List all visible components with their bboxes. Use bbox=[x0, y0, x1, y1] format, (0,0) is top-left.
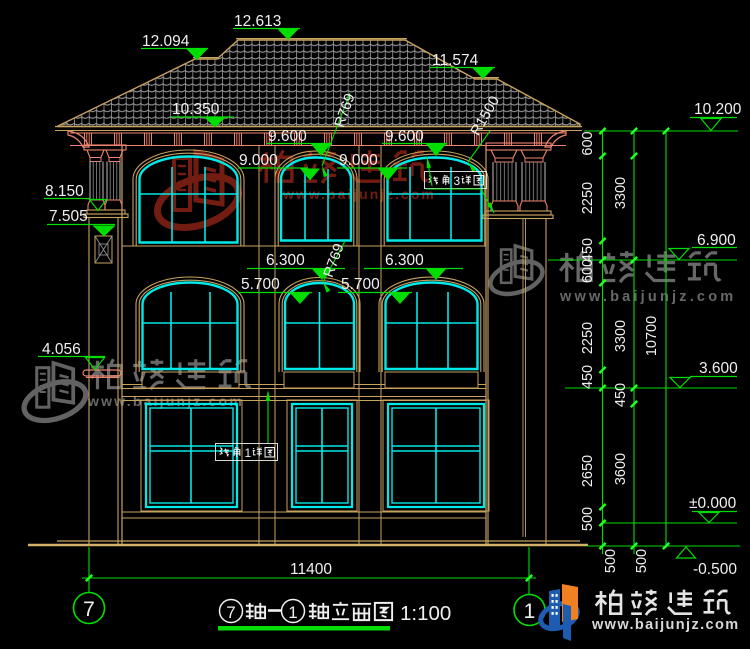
svg-text:3300: 3300 bbox=[613, 177, 629, 209]
svg-text:www.baijunjz.com: www.baijunjz.com bbox=[591, 617, 740, 633]
svg-text:12.613: 12.613 bbox=[234, 13, 281, 30]
svg-text:3.600: 3.600 bbox=[699, 360, 738, 377]
svg-text:6.900: 6.900 bbox=[697, 232, 736, 249]
svg-text:10.200: 10.200 bbox=[694, 101, 742, 118]
svg-text:450: 450 bbox=[580, 238, 596, 262]
svg-text:9.000: 9.000 bbox=[239, 152, 278, 169]
svg-text:-0.500: -0.500 bbox=[693, 561, 737, 578]
svg-text:12.094: 12.094 bbox=[142, 33, 190, 50]
svg-text:9.600: 9.600 bbox=[385, 128, 424, 145]
svg-text:9.600: 9.600 bbox=[268, 128, 307, 145]
svg-text:7: 7 bbox=[83, 598, 95, 621]
svg-text:11400: 11400 bbox=[290, 561, 332, 578]
svg-text:6.300: 6.300 bbox=[385, 252, 424, 269]
svg-text:600: 600 bbox=[580, 131, 596, 155]
svg-text:450: 450 bbox=[580, 365, 596, 389]
svg-text:2250: 2250 bbox=[580, 182, 596, 214]
svg-text:5.700: 5.700 bbox=[241, 276, 280, 293]
svg-text:500: 500 bbox=[580, 507, 596, 531]
svg-text:5.700: 5.700 bbox=[341, 276, 380, 293]
svg-text:500: 500 bbox=[603, 549, 619, 573]
svg-text:4.056: 4.056 bbox=[42, 341, 81, 358]
svg-text:9.000: 9.000 bbox=[339, 152, 378, 169]
svg-text:3: 3 bbox=[454, 174, 461, 188]
svg-text:1: 1 bbox=[524, 600, 536, 623]
svg-text:3600: 3600 bbox=[613, 453, 629, 485]
svg-text:1: 1 bbox=[245, 446, 252, 460]
svg-text:2250: 2250 bbox=[580, 322, 596, 354]
svg-text:500: 500 bbox=[634, 549, 650, 573]
svg-text:450: 450 bbox=[613, 383, 629, 407]
svg-text:10700: 10700 bbox=[644, 316, 660, 356]
svg-text:7.505: 7.505 bbox=[49, 208, 88, 225]
svg-text:3300: 3300 bbox=[613, 320, 629, 352]
svg-text:600: 600 bbox=[580, 259, 596, 283]
svg-text:10.350: 10.350 bbox=[172, 101, 220, 118]
svg-text:1: 1 bbox=[288, 603, 297, 622]
svg-text:6.300: 6.300 bbox=[266, 252, 305, 269]
svg-text:±0.000: ±0.000 bbox=[689, 495, 737, 512]
svg-text:www.baijunjz.com: www.baijunjz.com bbox=[559, 289, 736, 305]
svg-text:7: 7 bbox=[226, 603, 235, 622]
svg-text:11.574: 11.574 bbox=[432, 52, 479, 69]
svg-text:2650: 2650 bbox=[580, 455, 596, 487]
svg-text:8.150: 8.150 bbox=[45, 183, 84, 200]
svg-text:1:100: 1:100 bbox=[400, 602, 451, 625]
